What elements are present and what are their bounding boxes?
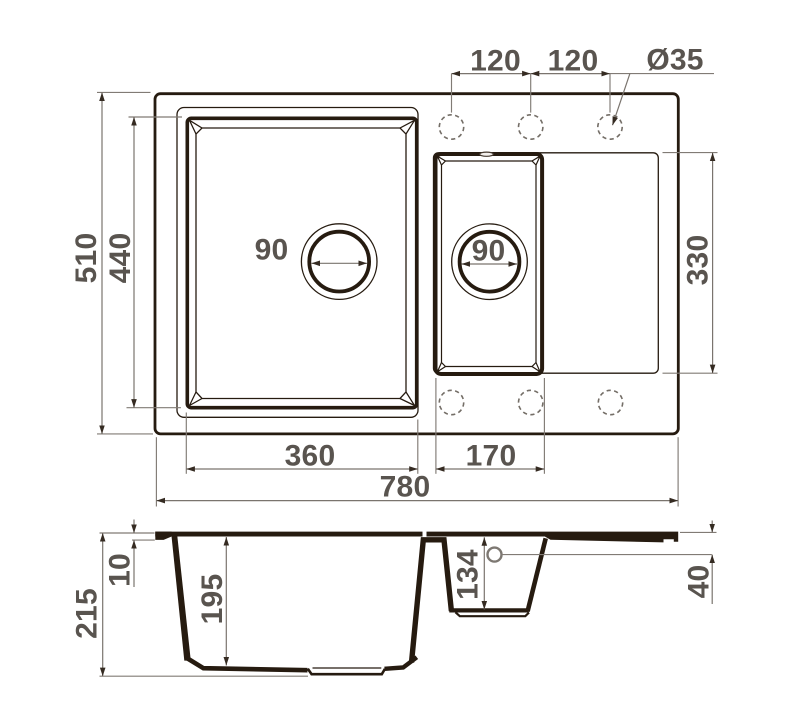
svg-text:10: 10 — [103, 553, 136, 587]
svg-text:Ø35: Ø35 — [646, 43, 703, 76]
svg-text:360: 360 — [285, 440, 336, 473]
svg-text:170: 170 — [466, 440, 517, 473]
svg-text:120: 120 — [548, 44, 599, 77]
svg-text:780: 780 — [380, 471, 431, 504]
svg-text:215: 215 — [71, 588, 104, 639]
svg-text:90: 90 — [255, 234, 289, 267]
svg-text:195: 195 — [196, 574, 229, 625]
svg-text:510: 510 — [70, 233, 103, 284]
svg-text:134: 134 — [452, 549, 485, 600]
svg-text:330: 330 — [682, 235, 715, 286]
svg-text:90: 90 — [472, 235, 506, 268]
svg-text:440: 440 — [104, 233, 137, 284]
svg-text:40: 40 — [682, 565, 715, 599]
svg-text:120: 120 — [470, 44, 521, 77]
